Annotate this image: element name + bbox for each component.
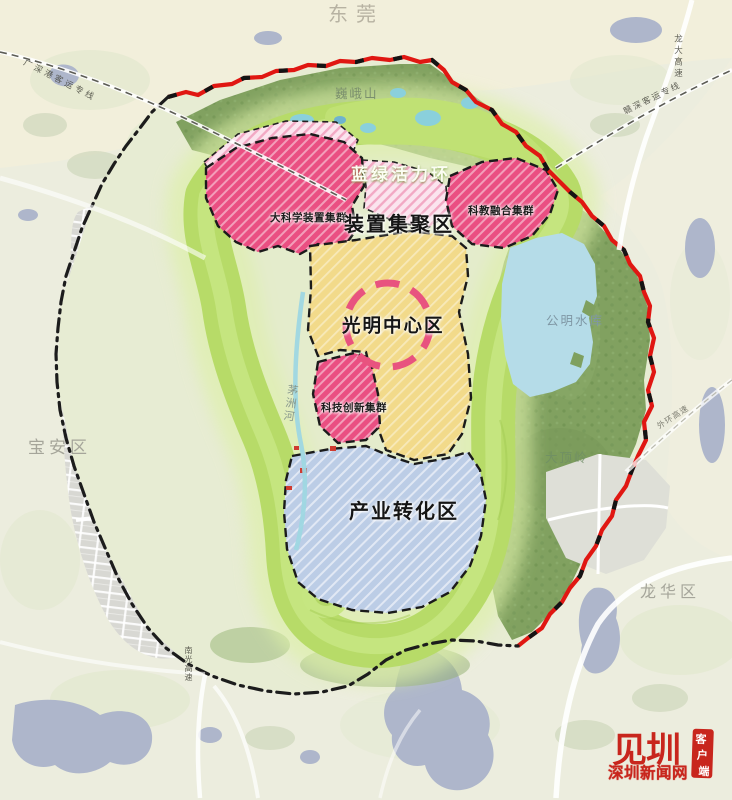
news-map-image: 东莞 广深港客运专线 龙大高速 赣深客运专线 外环高速 南光高速 巍峨山 蓝绿活… <box>0 0 732 800</box>
badge-char: 端 <box>698 763 710 779</box>
logo-client-badge: 客 户 端 <box>691 729 714 779</box>
shenzhen-news-logo: 见圳 深圳新闻网 客 户 端 <box>594 720 730 796</box>
gongming-reservoir-shape <box>501 233 597 397</box>
badge-char: 客 <box>695 731 707 747</box>
badge-char: 户 <box>697 747 709 763</box>
map-canvas <box>0 0 732 800</box>
logo-site-name: 深圳新闻网 <box>608 761 688 783</box>
zone-big-science <box>206 134 364 254</box>
